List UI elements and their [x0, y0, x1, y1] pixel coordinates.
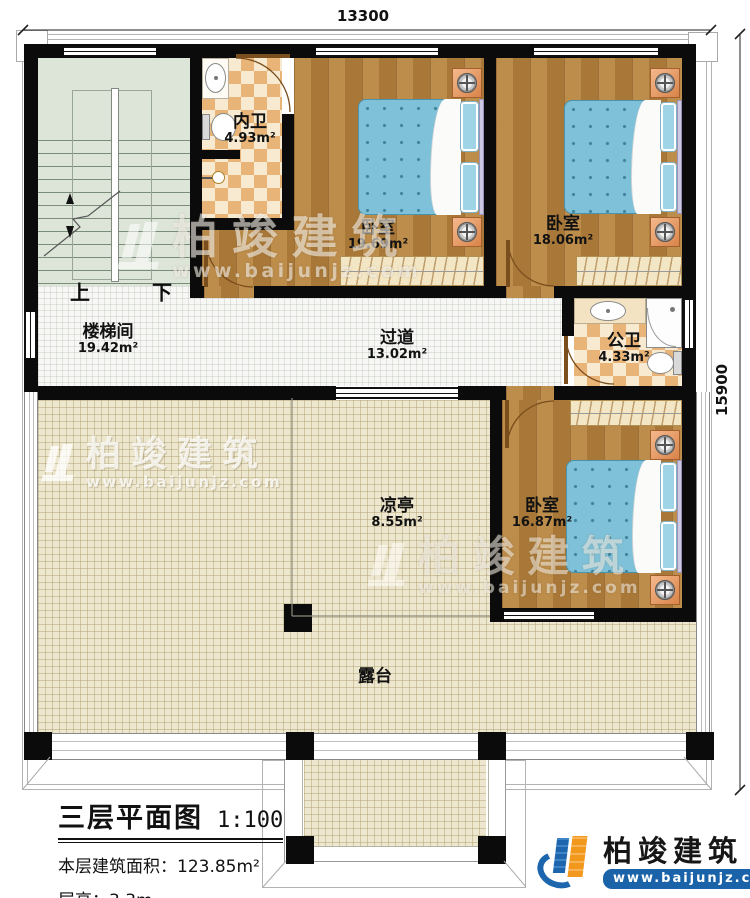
blanket-fold: [430, 99, 461, 215]
pillow: [461, 102, 477, 151]
door-threshold-bedroom1: [204, 286, 254, 298]
lamp-icon: [655, 222, 675, 242]
room-label-stairwell: 楼梯间 19.42m²: [78, 323, 138, 357]
nightstand: [452, 217, 482, 247]
wall-bedroom1-bedroom2: [484, 44, 496, 298]
room-label-pavilion: 凉亭 8.55m²: [371, 497, 422, 531]
company-logo: 柏竣建筑 www.baijunjz.com: [540, 836, 750, 890]
lamp-icon: [655, 73, 675, 93]
column: [478, 732, 506, 760]
shower-curve: [647, 308, 676, 347]
wall-bedrooms-south-a: [190, 286, 204, 298]
lamp-icon: [655, 580, 675, 600]
plan-scale: 1:100: [217, 808, 283, 833]
room-name: 露台: [358, 667, 392, 686]
column: [286, 836, 314, 864]
window-corridor-south: [336, 387, 458, 399]
room-label-public-bath: 公卫 4.33m²: [598, 332, 649, 366]
room-name: 卧室: [512, 497, 572, 516]
bed-bedroom2: [564, 100, 682, 214]
room-name: 卧室: [348, 219, 408, 238]
wall-innerbath-east: [282, 114, 294, 218]
room-area: 13.02m²: [367, 348, 427, 363]
blanket-fold: [632, 460, 661, 573]
shower-drain-icon: [670, 307, 675, 312]
room-label-inner-bath: 内卫 4.93m²: [224, 113, 275, 147]
company-name: 柏竣建筑: [603, 837, 750, 866]
window-bedroom1-north: [316, 46, 438, 57]
room-name: 凉亭: [371, 497, 422, 516]
room-area: 4.93m²: [224, 132, 275, 147]
floor-area-value: 123.85m²: [177, 857, 260, 877]
wall-bedrooms-south-c: [554, 286, 696, 298]
balcony-floor: [304, 758, 486, 846]
company-logo-icon: [540, 836, 594, 890]
dimension-top: 13300: [337, 7, 389, 25]
plan-title: 三层平面图: [58, 796, 203, 835]
window-bedroom2-north: [534, 46, 658, 57]
window-stairwell-north: [64, 46, 156, 57]
stair-up-label: 上: [70, 277, 90, 306]
lamp-icon: [457, 73, 477, 93]
title-underline: [58, 842, 283, 843]
door-threshold-bedroom3: [506, 386, 554, 400]
terrace-railing-south: [24, 733, 696, 760]
wall-lower-a: [24, 386, 336, 400]
column: [24, 732, 52, 760]
nightstand: [650, 68, 680, 98]
closet-bedroom3: [570, 400, 682, 426]
innerbath-sink-drain-icon: [214, 76, 218, 80]
wall-bedroom3-west: [490, 386, 502, 622]
company-website: www.baijunjz.com: [603, 869, 750, 889]
column: [686, 732, 714, 760]
nightstand: [650, 217, 680, 247]
innerbath-towel-ring-icon: [212, 171, 225, 184]
room-area: 19.69m²: [348, 238, 408, 253]
room-label-bedroom2: 卧室 18.06m²: [533, 215, 593, 249]
floor-height-row: 层高：3.3m: [58, 886, 283, 898]
stair-divider: [111, 88, 119, 282]
publicbath-shower-icon: [646, 298, 682, 348]
window-bedroom3-south: [504, 610, 594, 621]
wall-innerbath-south: [190, 218, 294, 230]
title-line: 三层平面图 1:100: [58, 796, 283, 840]
publicbath-sink-drain-icon: [606, 309, 610, 313]
column: [284, 604, 312, 632]
room-name: 公卫: [598, 332, 649, 351]
pillow: [661, 103, 676, 151]
blanket-fold: [631, 100, 660, 214]
column: [286, 732, 314, 760]
room-name: 卧室: [533, 215, 593, 234]
floor-height-value: 3.3m: [109, 891, 153, 898]
column: [478, 836, 506, 864]
closet-bedroom2: [576, 256, 682, 286]
room-label-bedroom1: 卧室 19.69m²: [348, 219, 408, 253]
lamp-icon: [655, 435, 675, 455]
floor-area-label: 本层建筑面积：: [58, 857, 177, 877]
room-label-terrace: 露台: [358, 667, 392, 686]
lamp-icon: [457, 222, 477, 242]
room-area: 19.42m²: [78, 342, 138, 357]
floor-plan: 13300 15900: [0, 0, 750, 898]
wall-stairwell-east: [190, 44, 202, 286]
pillow: [661, 163, 676, 211]
closet-bedroom1: [340, 256, 484, 286]
room-area: 16.87m²: [512, 516, 572, 531]
room-name: 楼梯间: [78, 323, 138, 342]
bed-bedroom1: [358, 99, 484, 215]
title-block: 三层平面图 1:100 本层建筑面积：123.85m² 层高：3.3m: [58, 796, 283, 898]
room-name: 内卫: [224, 113, 275, 132]
publicbath-toilet-bowl-icon: [647, 352, 674, 374]
dimension-right: 15900: [713, 364, 731, 416]
room-label-bedroom3: 卧室 16.87m²: [512, 497, 572, 531]
room-name: 过道: [367, 329, 427, 348]
nightstand: [452, 68, 482, 98]
innerbath-toilet-tank-icon: [202, 114, 210, 140]
room-area: 18.06m²: [533, 234, 593, 249]
window-publicbath-east: [683, 300, 695, 348]
pillow: [461, 163, 477, 212]
pillow: [661, 522, 676, 569]
terrace-railing-west: [24, 392, 38, 760]
nightstand: [650, 575, 680, 605]
stair-down-label: 下: [152, 277, 172, 306]
wall-lower-c: [554, 386, 696, 400]
floor-area-row: 本层建筑面积：123.85m²: [58, 852, 283, 877]
logo-building-orange: [567, 836, 587, 877]
room-area: 8.55m²: [371, 516, 422, 531]
room-area: 4.33m²: [598, 351, 649, 366]
publicbath-toilet-tank-icon: [673, 351, 682, 375]
floor-height-label: 层高：: [58, 891, 109, 898]
innerbath-half-wall: [202, 150, 240, 159]
window-corridor-west: [24, 312, 37, 358]
door-threshold-bedroom2: [506, 286, 554, 298]
bedroom1-floor-strip: [202, 230, 294, 286]
room-label-corridor: 过道 13.02m²: [367, 329, 427, 363]
pillow: [661, 463, 676, 510]
terrace-railing-east: [696, 392, 710, 758]
nightstand: [650, 430, 680, 460]
wall-publicbath-west: [562, 298, 574, 336]
wall-bedrooms-south-b: [254, 286, 506, 298]
bed-bedroom3: [566, 460, 682, 573]
balcony-line: [304, 846, 486, 847]
